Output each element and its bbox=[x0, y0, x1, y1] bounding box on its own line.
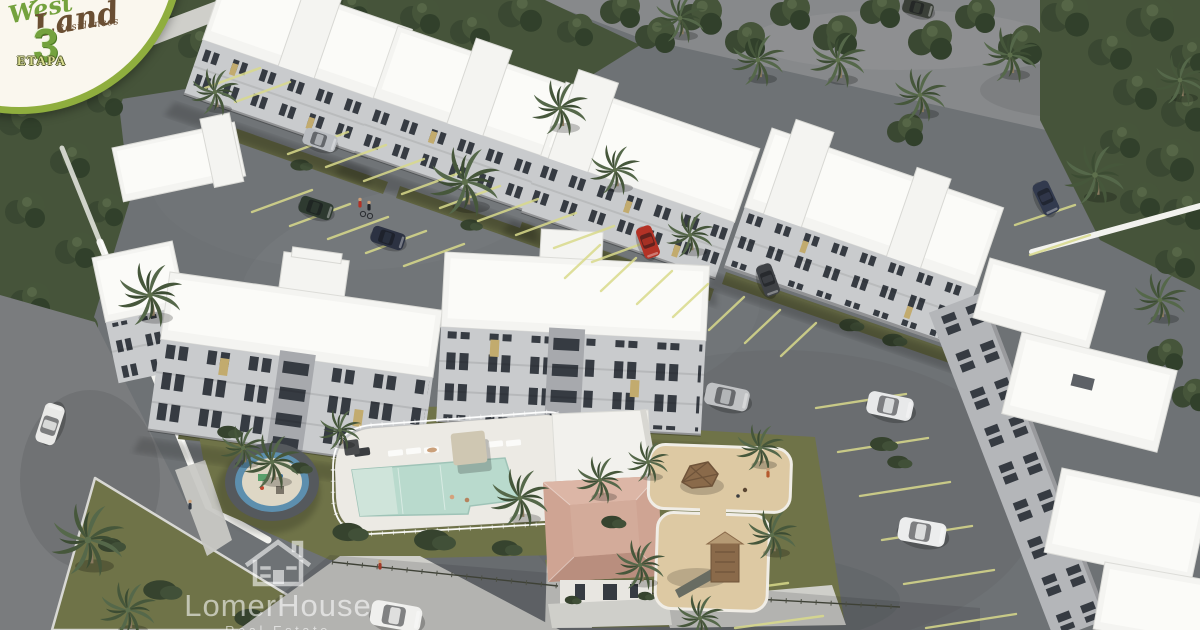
aerial-render: West Land Residences 3 ETAPA LomerHouse … bbox=[0, 0, 1200, 630]
play-item bbox=[736, 494, 740, 498]
swimmer bbox=[465, 498, 470, 503]
swimmer bbox=[450, 495, 455, 500]
pool-area bbox=[333, 412, 575, 534]
site-render bbox=[0, 0, 1200, 630]
play-item bbox=[743, 488, 747, 492]
